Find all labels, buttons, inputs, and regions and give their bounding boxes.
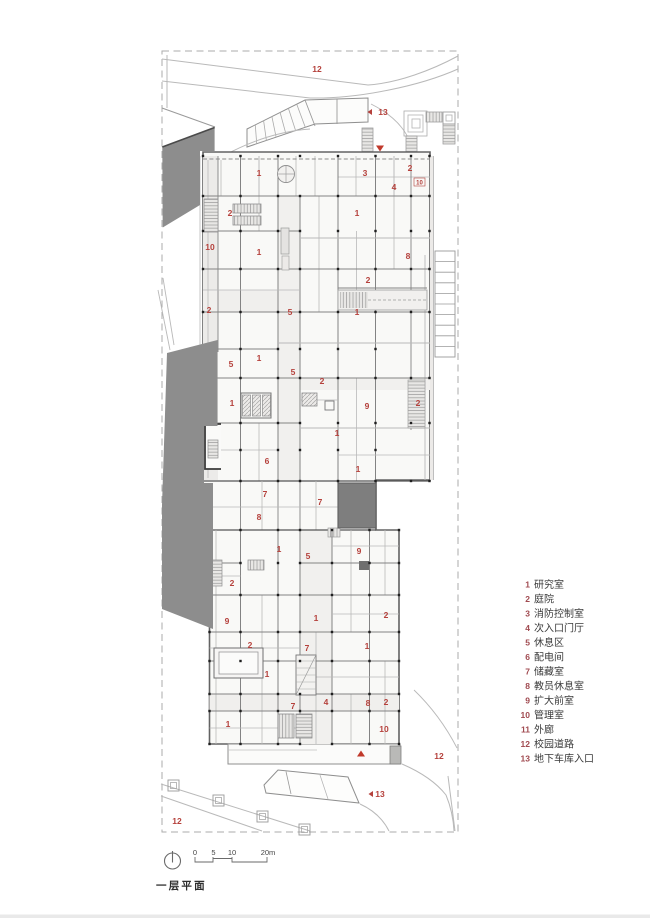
svg-text:2: 2	[408, 163, 413, 173]
svg-text:1: 1	[277, 544, 282, 554]
svg-text:3: 3	[525, 609, 530, 619]
svg-text:1: 1	[355, 307, 360, 317]
svg-text:3: 3	[363, 168, 368, 178]
svg-text:配电间: 配电间	[534, 651, 564, 664]
svg-text:5: 5	[211, 848, 215, 857]
svg-text:6: 6	[525, 652, 530, 662]
svg-text:外廊: 外廊	[534, 723, 554, 736]
svg-text:12: 12	[521, 739, 531, 749]
svg-text:0: 0	[193, 848, 197, 857]
svg-text:4: 4	[392, 182, 397, 192]
svg-text:1: 1	[356, 464, 361, 474]
svg-text:10: 10	[416, 181, 423, 187]
svg-text:1: 1	[314, 613, 319, 623]
svg-text:20m: 20m	[261, 848, 276, 857]
svg-text:一层平面: 一层平面	[156, 880, 207, 892]
svg-text:13: 13	[521, 754, 531, 764]
svg-text:1: 1	[226, 719, 231, 729]
svg-text:2: 2	[366, 275, 371, 285]
svg-text:13: 13	[378, 107, 388, 117]
svg-text:9: 9	[225, 616, 230, 626]
svg-text:10: 10	[521, 710, 531, 720]
svg-text:1: 1	[230, 398, 235, 408]
svg-text:9: 9	[357, 546, 362, 556]
svg-text:地下车库入口: 地下车库入口	[534, 752, 594, 765]
svg-text:2: 2	[384, 697, 389, 707]
svg-text:2: 2	[228, 208, 233, 218]
svg-text:2: 2	[525, 594, 530, 604]
svg-text:教员休息室: 教员休息室	[534, 680, 584, 693]
svg-text:13: 13	[375, 789, 385, 799]
svg-text:10: 10	[228, 848, 236, 857]
svg-text:1: 1	[265, 669, 270, 679]
svg-text:1: 1	[257, 353, 262, 363]
svg-text:12: 12	[434, 751, 444, 761]
svg-text:10: 10	[379, 724, 389, 734]
svg-text:管理室: 管理室	[534, 709, 564, 722]
svg-text:2: 2	[230, 578, 235, 588]
svg-text:9: 9	[525, 696, 530, 706]
svg-text:5: 5	[291, 367, 296, 377]
svg-text:10: 10	[205, 242, 215, 252]
svg-text:休息区: 休息区	[534, 636, 564, 649]
svg-text:2: 2	[384, 610, 389, 620]
svg-text:1: 1	[335, 428, 340, 438]
svg-text:2: 2	[207, 305, 212, 315]
svg-text:庭院: 庭院	[534, 593, 554, 606]
svg-text:次入口门厅: 次入口门厅	[534, 622, 584, 635]
svg-text:6: 6	[265, 456, 270, 466]
svg-text:2: 2	[320, 376, 325, 386]
svg-text:8: 8	[406, 251, 411, 261]
svg-text:5: 5	[306, 551, 311, 561]
svg-text:11: 11	[521, 725, 530, 735]
svg-text:校园道路: 校园道路	[534, 738, 574, 751]
svg-text:9: 9	[365, 401, 370, 411]
svg-text:1: 1	[355, 208, 360, 218]
svg-text:12: 12	[312, 64, 322, 74]
svg-text:扩大前室: 扩大前室	[534, 694, 574, 707]
svg-text:储藏室: 储藏室	[534, 665, 564, 678]
svg-text:5: 5	[229, 359, 234, 369]
svg-text:5: 5	[288, 307, 293, 317]
svg-text:1: 1	[365, 641, 370, 651]
svg-text:7: 7	[263, 489, 268, 499]
svg-text:7: 7	[318, 497, 323, 507]
svg-text:2: 2	[248, 640, 253, 650]
svg-text:8: 8	[257, 512, 262, 522]
svg-text:8: 8	[366, 698, 371, 708]
svg-text:1: 1	[257, 168, 262, 178]
svg-text:2: 2	[416, 398, 421, 408]
svg-text:7: 7	[305, 643, 310, 653]
svg-text:5: 5	[525, 638, 530, 648]
svg-text:消防控制室: 消防控制室	[534, 607, 584, 620]
svg-text:4: 4	[525, 623, 530, 633]
svg-text:4: 4	[324, 697, 329, 707]
svg-text:7: 7	[525, 667, 530, 677]
svg-text:7: 7	[291, 701, 296, 711]
svg-text:12: 12	[172, 816, 182, 826]
svg-text:研究室: 研究室	[534, 578, 564, 591]
svg-text:1: 1	[525, 580, 530, 590]
svg-text:8: 8	[525, 681, 530, 691]
svg-text:1: 1	[257, 247, 262, 257]
